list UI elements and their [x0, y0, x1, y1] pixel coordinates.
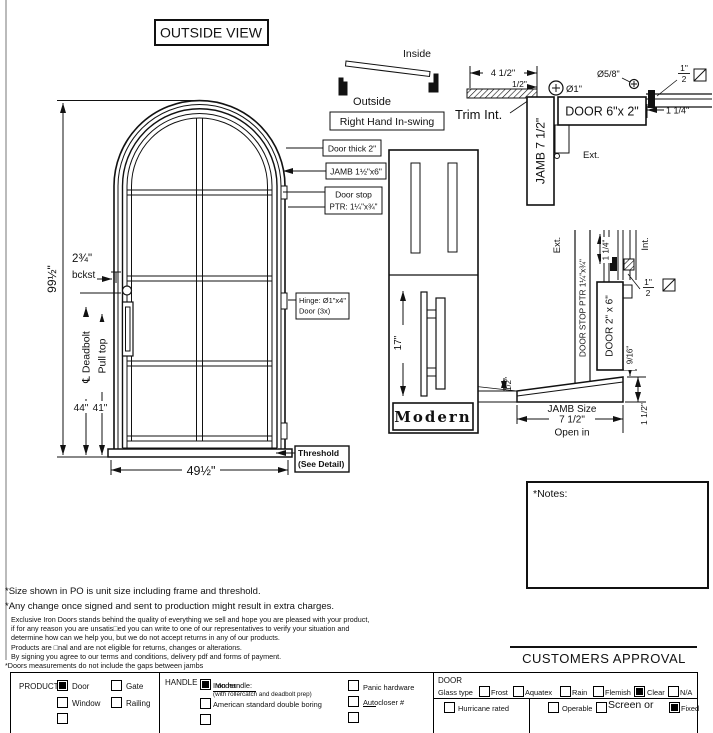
- section-frac-den: 2: [646, 288, 651, 298]
- width-dimension: 49½": [111, 460, 288, 478]
- operable-label: Operable: [562, 704, 592, 713]
- american-boring-label: American standard double boring: [213, 700, 322, 709]
- jamb-size-line3: Open in: [554, 428, 589, 439]
- backset-label: bckst: [72, 270, 96, 281]
- callout-labels: Door thick 2" JAMB 1½"x6" Door stop PTR:…: [276, 140, 386, 472]
- screen-checkbox[interactable]: [596, 702, 607, 713]
- trim-int-label: Trim Int.: [455, 107, 502, 122]
- swing-diagram: Inside Outside Right Hand In-swing: [330, 48, 444, 130]
- door-stop-label-2: PTR: 1¼"x¾": [330, 203, 378, 212]
- product-railing-label: Railing: [126, 699, 150, 708]
- hinge-bottom: [281, 423, 287, 439]
- product-extra-checkbox[interactable]: [57, 713, 68, 724]
- head-frac-num: 1": [680, 63, 688, 73]
- form-divider-2: [433, 673, 434, 733]
- width-dim-text: 49½": [187, 464, 216, 478]
- swing-type-label: Right Hand In-swing: [340, 116, 435, 128]
- handle-style-name: Modern: [394, 408, 471, 426]
- pull-handle: [123, 302, 134, 356]
- form-divider-4: [529, 698, 530, 733]
- pull-top-label: Pull top: [97, 338, 109, 373]
- backset-num: 2¾": [72, 253, 92, 265]
- glass-rain-checkbox[interactable]: [560, 686, 571, 697]
- left-jamb-block: [339, 78, 347, 95]
- operable-checkbox[interactable]: [548, 702, 559, 713]
- strike-plate: [555, 125, 569, 153]
- screen-label: Screen or: [608, 699, 654, 711]
- product-label: PRODUCT:: [19, 682, 60, 691]
- jamb-size-line2: 7 1/2": [559, 415, 585, 426]
- approval-block: CUSTOMERS APPROVAL: [510, 647, 697, 666]
- glass-clear-checkbox[interactable]: [634, 686, 645, 697]
- section-door-stop-text: DOOR STOP PTR 1¼"x¾": [579, 259, 588, 357]
- section-dim-gap: 1 1/4": [602, 240, 611, 261]
- door-elevation: [108, 101, 292, 457]
- section-ext-label: Ext.: [552, 237, 563, 253]
- product-window-label: Window: [72, 699, 100, 708]
- deadbolt-dim: 44": [74, 403, 89, 414]
- section-dim-15: 1 1/2": [639, 403, 649, 425]
- jamb-sill-section: Ext. DOOR STOP PTR 1¼"x¾" 1 1/4" Int. DO…: [472, 230, 675, 439]
- panic-hardware-label: Panic hardware: [363, 683, 414, 692]
- hurricane-checkbox[interactable]: [444, 702, 455, 713]
- hinge-label-1: Hinge: Ø1"x4": [299, 296, 346, 305]
- deadbolt: [123, 286, 132, 295]
- fixed-label: Fixed: [681, 704, 699, 713]
- deadbolt-cl-label: ℄ Deadbolt: [81, 331, 93, 384]
- threshold: [108, 449, 292, 457]
- smallprint-line-2: if for any reason you are unsatis□ed you…: [11, 624, 369, 633]
- head-jamb-text: JAMB 7 1/2": [534, 118, 548, 184]
- threshold-label-2: (See Detail): [298, 459, 344, 469]
- head-jamb-detail: 4 1/2" 1/2" Trim Int. JAMB 7 1/2" Ø1" Ex…: [455, 63, 712, 205]
- handle-section-label: HANDLE: [165, 678, 197, 687]
- door-section-label: DOOR: [438, 676, 462, 685]
- handle-dim: 17": [393, 335, 404, 350]
- door-leaf-outline: [123, 109, 278, 448]
- footnote-size: *Size shown in PO is unit size including…: [5, 586, 261, 597]
- swing-outside-label: Outside: [353, 96, 391, 108]
- bolt-dia-label: Ø5/8": [597, 69, 620, 79]
- head-dim-gap: 1 1/4": [666, 106, 689, 116]
- notes-label: *Notes:: [533, 488, 567, 500]
- glass-rain-label: Rain: [572, 688, 587, 697]
- order-form: PRODUCT: Door Gate Window Railing HANDLE…: [10, 672, 698, 733]
- head-frac-den: 2: [682, 74, 687, 84]
- fixed-checkbox[interactable]: [669, 702, 680, 713]
- view-title: OUTSIDE VIEW: [155, 20, 268, 45]
- glass-aquatex-checkbox[interactable]: [513, 686, 524, 697]
- iron-handle-note: (with rollercatch and deadbolt prep): [213, 691, 312, 698]
- form-divider-1: [159, 673, 160, 733]
- glass-clear-label: Clear: [647, 688, 665, 697]
- glass-frost-checkbox[interactable]: [479, 686, 490, 697]
- hinge-dia-label: Ø1": [566, 84, 582, 95]
- glass-type-label: Glass type: [438, 688, 473, 697]
- approval-label: CUSTOMERS APPROVAL: [522, 651, 686, 666]
- hurricane-label: Hurricane rated: [458, 704, 509, 713]
- hinge-mid: [281, 293, 287, 309]
- threshold-label-1: Threshold: [298, 448, 339, 458]
- glass-grid: [127, 119, 272, 442]
- glass-frost-label: Frost: [491, 688, 508, 697]
- drawing-canvas: OUTSIDE VIEW Inside Outside Right Hand I…: [0, 0, 713, 672]
- head-ext-label: Ext.: [583, 150, 599, 161]
- head-dim-trim: 1/2": [512, 79, 527, 89]
- autocloser-blank-field[interactable]: [363, 698, 376, 707]
- door-stop-label-1: Door stop: [335, 190, 372, 200]
- glass-flemish-checkbox[interactable]: [593, 686, 604, 697]
- product-railing-checkbox[interactable]: [111, 697, 122, 708]
- door-shop-drawing: { "page": { "title": "OUTSIDE VIEW" }, "…: [0, 0, 713, 713]
- product-gate-checkbox[interactable]: [111, 680, 122, 691]
- handle-detail-panel: 17" Modern: [389, 150, 478, 433]
- section-dim-half: 1/2": [504, 377, 513, 391]
- smallprint-line-1: Exclusive Iron Doors stands behind the q…: [11, 615, 369, 624]
- head-dim-width: 4 1/2": [491, 68, 516, 79]
- weather-seal: [648, 90, 655, 108]
- door-thick-label: Door thick 2": [328, 144, 376, 154]
- glass-na-label: N/A: [680, 688, 692, 697]
- american-boring-checkbox[interactable]: [200, 698, 211, 709]
- right-jamb-block: [429, 74, 438, 92]
- product-door-label: Door: [72, 682, 89, 691]
- iron-handle-checkbox[interactable]: [200, 679, 211, 690]
- section-frac-num: 1": [644, 277, 652, 287]
- jamb-label: JAMB 1½"x6": [330, 167, 382, 177]
- section-door-text: DOOR 2" x 6": [605, 295, 616, 357]
- view-title-text: OUTSIDE VIEW: [160, 25, 263, 41]
- form-divider-3: [433, 698, 697, 699]
- glass-aquatex-label: Aquatex: [525, 688, 552, 697]
- autocloser-extra-checkbox[interactable]: [348, 712, 359, 723]
- autocloser-checkbox[interactable]: [348, 696, 359, 707]
- footnote-changes: *Any change once signed and sent to prod…: [5, 601, 334, 612]
- swing-inside-label: Inside: [403, 48, 431, 60]
- pull-dim: 41": [93, 403, 108, 414]
- product-window-checkbox[interactable]: [57, 697, 68, 708]
- smallprint-line-4: Products are □nal and are not eligible f…: [11, 643, 369, 652]
- section-int-label: Int.: [640, 237, 651, 250]
- section-dim-916: 9/16": [626, 346, 635, 365]
- notes-box[interactable]: *Notes:: [527, 482, 708, 588]
- smallprint-line-3: determine how can we help you, but we do…: [11, 633, 369, 642]
- head-door-text: DOOR 6"x 2": [565, 105, 638, 119]
- glass-flemish-label: Flemish: [605, 688, 631, 697]
- product-door-checkbox[interactable]: [57, 680, 68, 691]
- door-slab: [346, 61, 431, 77]
- panic-hardware-checkbox[interactable]: [348, 680, 359, 691]
- handle-extra-checkbox[interactable]: [200, 714, 211, 725]
- height-dim-text: 99½": [45, 265, 59, 293]
- footnote-gaps: *Doors measurements do not include the g…: [5, 661, 203, 670]
- hinge-label-2: Door (3x): [299, 307, 331, 316]
- footnote-smallprint: Exclusive Iron Doors stands behind the q…: [11, 615, 369, 661]
- smallprint-line-5: By signing you agree to our terms and co…: [11, 652, 369, 661]
- product-gate-label: Gate: [126, 682, 143, 691]
- glass-na-checkbox[interactable]: [668, 686, 679, 697]
